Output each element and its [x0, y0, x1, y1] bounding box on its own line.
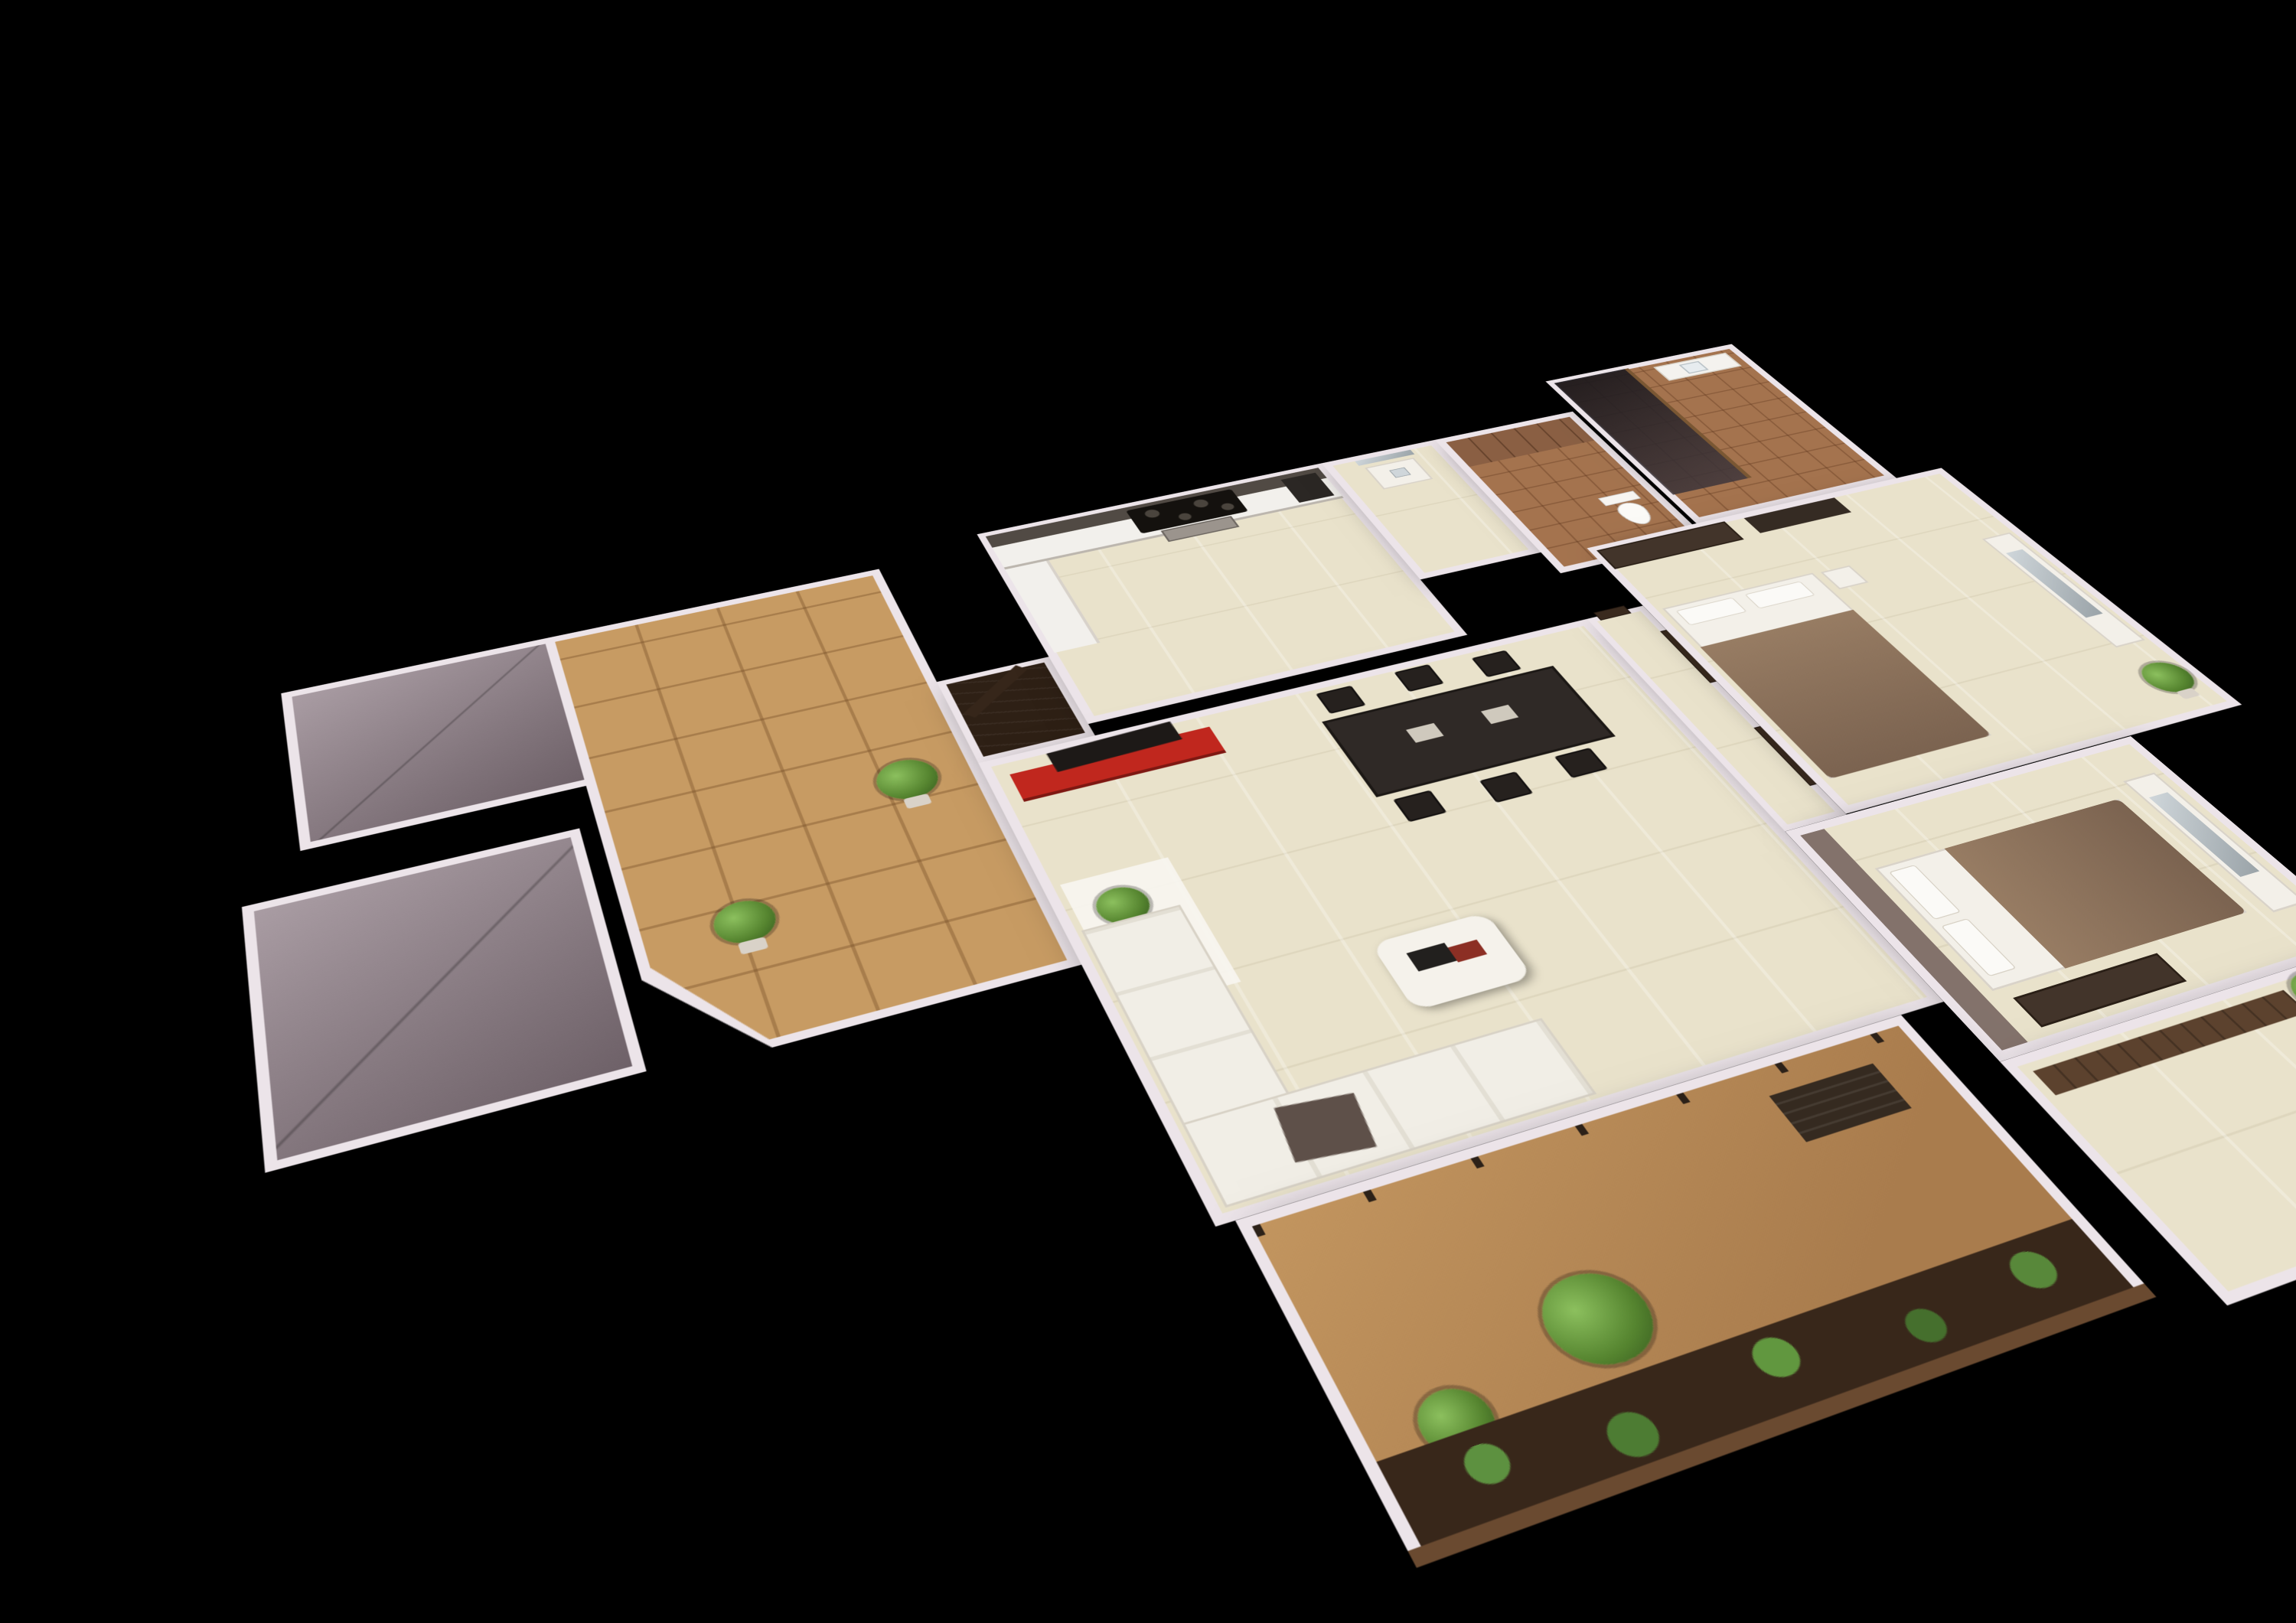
toilet-door	[1593, 605, 1632, 621]
garden-shrub-large	[1522, 1260, 1674, 1378]
apartment-floor-plan	[212, 357, 2296, 1623]
tall-cabinet	[1005, 560, 1100, 653]
room-open-box-lower	[242, 828, 647, 1172]
wc-bowl	[1612, 500, 1658, 526]
dining-chair	[1554, 748, 1608, 778]
dining-chair	[1472, 650, 1522, 676]
nightstand	[1821, 565, 1869, 588]
dining-chair	[1316, 685, 1366, 713]
slatted-bench	[1769, 1063, 1912, 1142]
terrace-floor	[555, 575, 1067, 1064]
soil-planter-bed	[1376, 1218, 2136, 1550]
toilet-wall-tiles	[1446, 416, 1595, 466]
dining-chair	[1393, 790, 1447, 822]
dresser-mirror	[2006, 549, 2103, 618]
render-canvas	[0, 0, 2296, 1623]
room-open-box-upper	[281, 636, 598, 850]
sofa-left-section	[1081, 904, 1292, 1129]
dining-chair	[1394, 664, 1444, 692]
dining-chair	[1479, 771, 1534, 803]
main-door	[964, 665, 1028, 718]
